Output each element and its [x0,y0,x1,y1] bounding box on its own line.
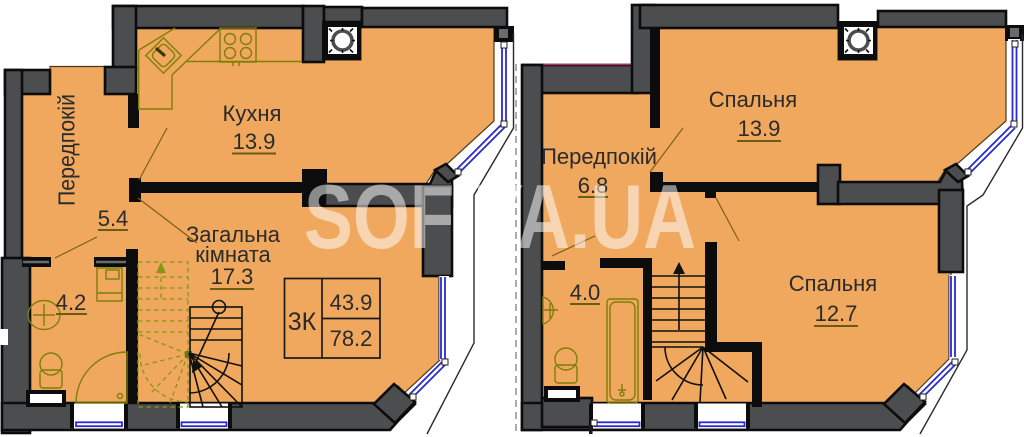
svg-text:Кухня: Кухня [223,101,282,126]
svg-text:4.0: 4.0 [570,280,601,305]
svg-text:4.2: 4.2 [56,290,87,315]
svg-text:13.9: 13.9 [233,129,276,154]
svg-text:Спальня: Спальня [789,271,877,296]
svg-text:SOFIYA.UA: SOFIYA.UA [304,167,696,268]
svg-text:78.2: 78.2 [330,326,373,351]
svg-text:12.7: 12.7 [815,301,858,326]
svg-text:13.9: 13.9 [738,116,781,141]
svg-text:Передпокій: Передпокій [54,94,80,206]
svg-text:Передпокій: Передпокій [541,144,657,169]
svg-text:Спальня: Спальня [709,87,797,112]
svg-text:5.4: 5.4 [98,206,129,231]
svg-text:43.9: 43.9 [330,290,373,315]
svg-text:17.3: 17.3 [211,264,254,289]
svg-text:3К: 3К [288,308,317,336]
